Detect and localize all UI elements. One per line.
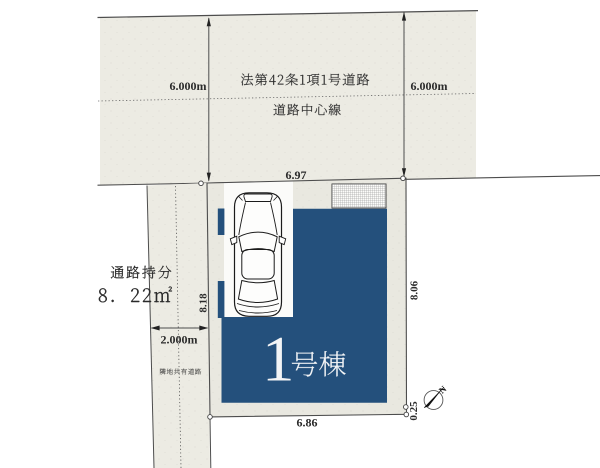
svg-text:2.000m: 2.000m bbox=[161, 333, 198, 347]
svg-text:8.18: 8.18 bbox=[197, 293, 209, 313]
svg-text:6.86: 6.86 bbox=[297, 416, 318, 430]
svg-text:0.25: 0.25 bbox=[408, 401, 420, 421]
svg-text:6.000m: 6.000m bbox=[170, 79, 207, 93]
svg-text:6.000m: 6.000m bbox=[411, 79, 448, 93]
svg-text:8.06: 8.06 bbox=[409, 280, 421, 300]
svg-text:6.97: 6.97 bbox=[286, 168, 307, 182]
svg-text:1: 1 bbox=[262, 324, 295, 396]
